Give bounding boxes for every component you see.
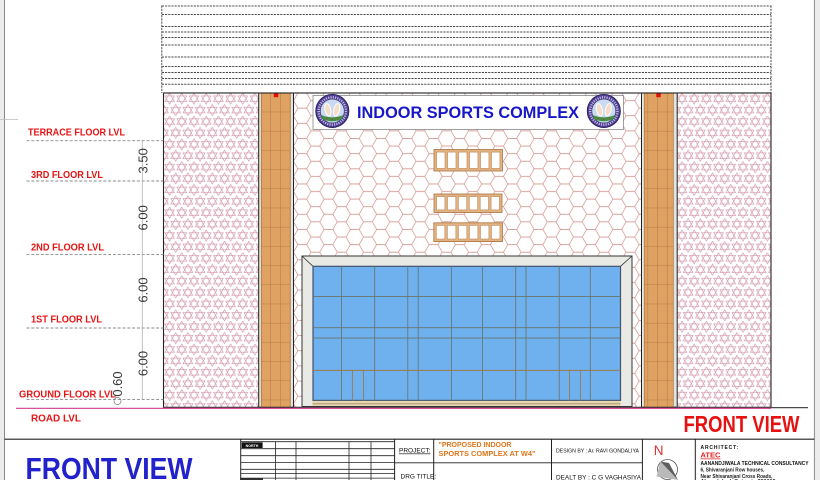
svg-text:GROUND FLOOR LVL: GROUND FLOOR LVL (19, 390, 116, 401)
svg-text:3.50: 3.50 (136, 148, 151, 173)
svg-text:SPORTS COMPLEX AT W4": SPORTS COMPLEX AT W4" (439, 449, 536, 458)
svg-text:INDOOR SPORTS COMPLEX: INDOOR SPORTS COMPLEX (357, 103, 580, 122)
svg-text:TERRACE FLOOR LVL: TERRACE FLOOR LVL (28, 128, 125, 139)
svg-text:6.00: 6.00 (136, 205, 151, 230)
svg-text:1ST FLOOR LVL: 1ST FLOOR LVL (31, 315, 102, 326)
svg-text:6, Shivaranjani Row houses,: 6, Shivaranjani Row houses, (701, 467, 765, 473)
svg-text:DESIGN BY : Ar. RAVI GONDALIY: DESIGN BY : Ar. RAVI GONDALIYA (556, 449, 639, 455)
svg-text:"PROPOSED INDOOR: "PROPOSED INDOOR (439, 440, 513, 449)
svg-text:PROJECT:: PROJECT: (399, 448, 431, 455)
svg-text:N: N (654, 443, 664, 458)
svg-text:ROAD LVL: ROAD LVL (31, 414, 81, 425)
svg-text:6.00: 6.00 (136, 277, 151, 302)
svg-text:3RD FLOOR LVL: 3RD FLOOR LVL (31, 170, 103, 181)
svg-text:DRG TITLE:: DRG TITLE: (401, 474, 437, 480)
svg-text:ATEC: ATEC (701, 451, 721, 460)
svg-text:6.00: 6.00 (136, 351, 151, 376)
svg-text:FRONT VIEW: FRONT VIEW (26, 452, 193, 480)
svg-text:FRONT VIEW: FRONT VIEW (684, 411, 800, 437)
svg-text:2ND FLOOR LVL: 2ND FLOOR LVL (31, 242, 104, 253)
svg-text:NORTH: NORTH (246, 444, 259, 448)
svg-text:AANANDJIWALA TECHNICAL CONSULT: AANANDJIWALA TECHNICAL CONSULTANCY (701, 461, 809, 467)
svg-text:DEALT BY : C G VAGHASIYA: DEALT BY : C G VAGHASIYA (556, 475, 642, 480)
